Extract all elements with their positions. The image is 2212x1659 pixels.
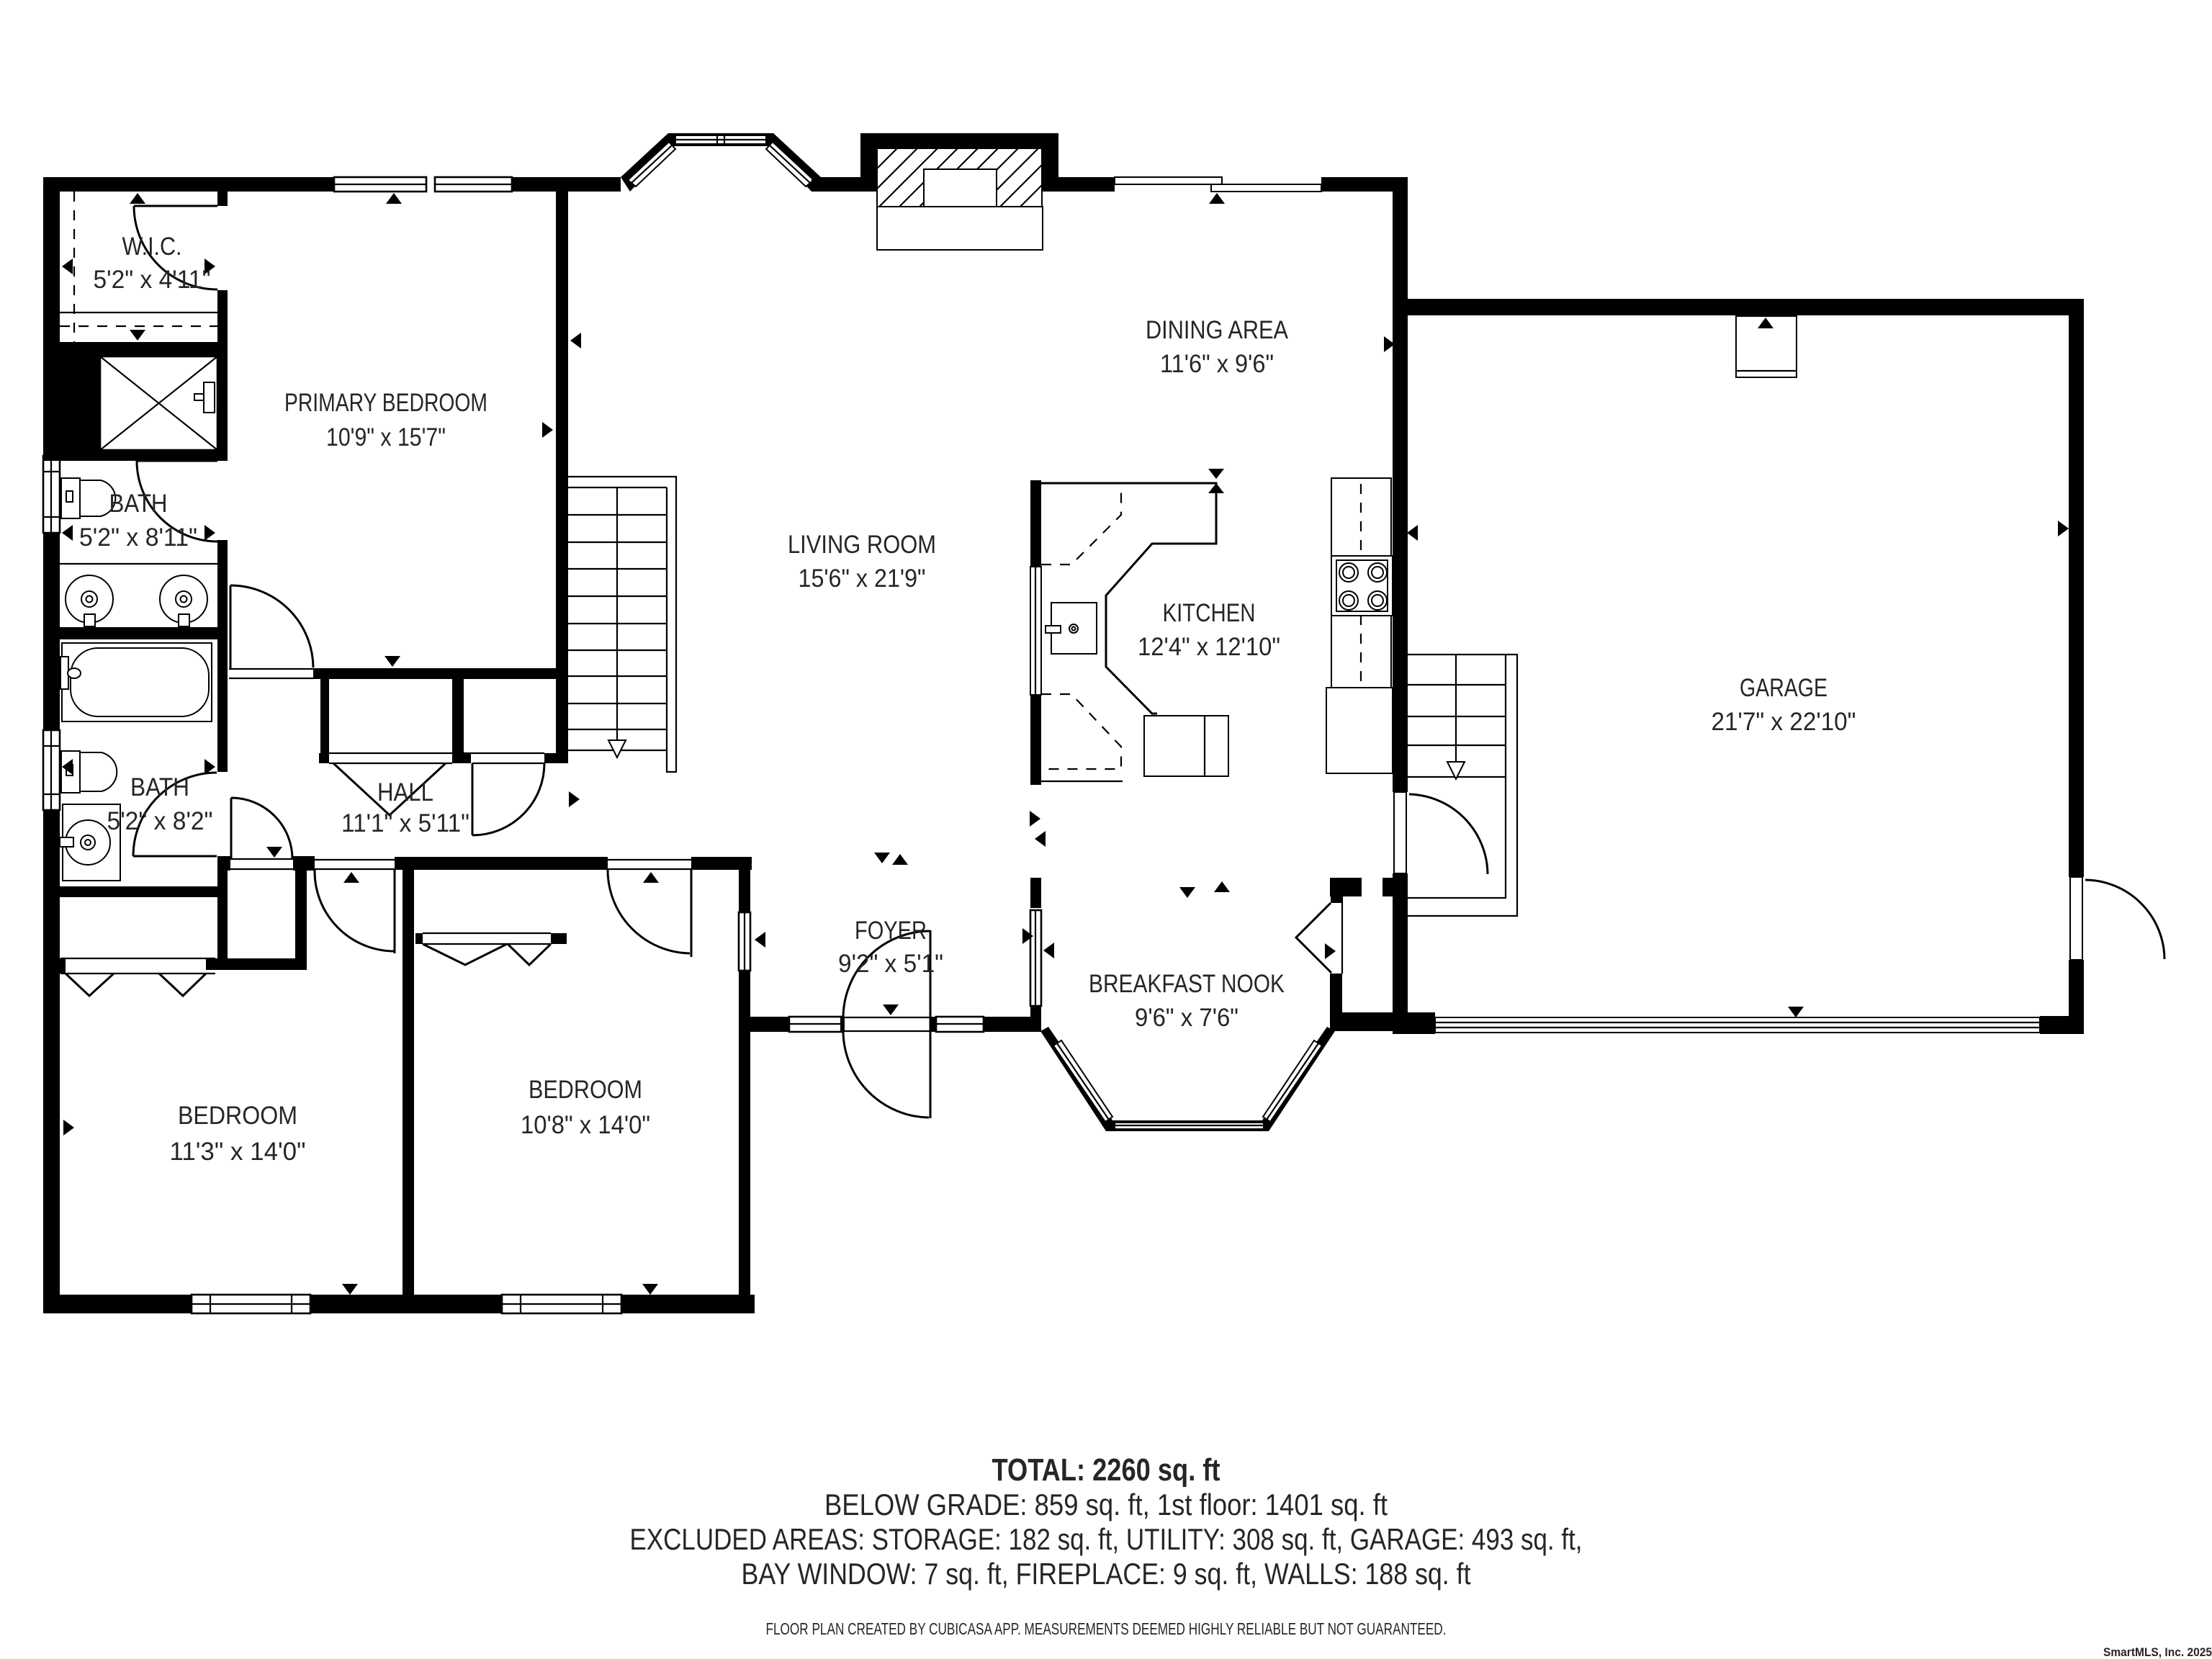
svg-text:FOYER: FOYER (855, 917, 927, 945)
svg-text:DINING AREA: DINING AREA (1146, 316, 1289, 344)
svg-text:GARAGE: GARAGE (1740, 674, 1827, 702)
svg-text:10'9" x 15'7": 10'9" x 15'7" (326, 423, 446, 451)
svg-text:5'2" x 4'11": 5'2" x 4'11" (94, 266, 211, 294)
svg-text:9'6" x 7'6": 9'6" x 7'6" (1135, 1004, 1238, 1032)
svg-text:11'6" x 9'6": 11'6" x 9'6" (1160, 350, 1274, 378)
svg-text:LIVING ROOM: LIVING ROOM (788, 531, 936, 559)
svg-text:BATH: BATH (109, 490, 168, 518)
svg-text:5'2" x 8'2": 5'2" x 8'2" (107, 807, 213, 835)
svg-text:BAY WINDOW: 7 sq. ft, FIREPLAC: BAY WINDOW: 7 sq. ft, FIREPLACE: 9 sq. f… (742, 1557, 1471, 1591)
svg-text:BATH: BATH (130, 773, 189, 801)
svg-text:FLOOR PLAN CREATED BY CUBICASA: FLOOR PLAN CREATED BY CUBICASA APP. MEAS… (766, 1619, 1447, 1638)
svg-text:11'1" x 5'11": 11'1" x 5'11" (341, 809, 469, 837)
svg-text:15'6" x 21'9": 15'6" x 21'9" (799, 565, 926, 593)
svg-text:HALL: HALL (377, 778, 433, 806)
svg-text:BEDROOM: BEDROOM (178, 1102, 297, 1130)
svg-text:TOTAL: 2260 sq. ft: TOTAL: 2260 sq. ft (992, 1452, 1220, 1488)
svg-text:10'8" x 14'0": 10'8" x 14'0" (521, 1111, 650, 1139)
svg-text:21'7" x 22'10": 21'7" x 22'10" (1712, 708, 1856, 736)
svg-text:9'2" x 5'1": 9'2" x 5'1" (838, 950, 943, 978)
svg-text:W.I.C.: W.I.C. (122, 233, 182, 261)
svg-text:12'4" x 12'10": 12'4" x 12'10" (1138, 633, 1280, 661)
svg-text:11'3" x 14'0": 11'3" x 14'0" (170, 1138, 306, 1166)
svg-text:KITCHEN: KITCHEN (1163, 599, 1256, 627)
svg-text:BELOW GRADE: 859 sq. ft, 1st f: BELOW GRADE: 859 sq. ft, 1st floor: 1401… (824, 1488, 1388, 1521)
svg-text:EXCLUDED AREAS: STORAGE: 182 s: EXCLUDED AREAS: STORAGE: 182 sq. ft, UTI… (630, 1522, 1583, 1556)
svg-text:BEDROOM: BEDROOM (529, 1076, 642, 1104)
svg-text:BREAKFAST NOOK: BREAKFAST NOOK (1089, 970, 1285, 998)
svg-text:5'2" x 8'11": 5'2" x 8'11" (79, 523, 197, 552)
svg-text:SmartMLS, Inc. 2025: SmartMLS, Inc. 2025 (2103, 1645, 2212, 1659)
svg-text:PRIMARY BEDROOM: PRIMARY BEDROOM (284, 389, 487, 417)
